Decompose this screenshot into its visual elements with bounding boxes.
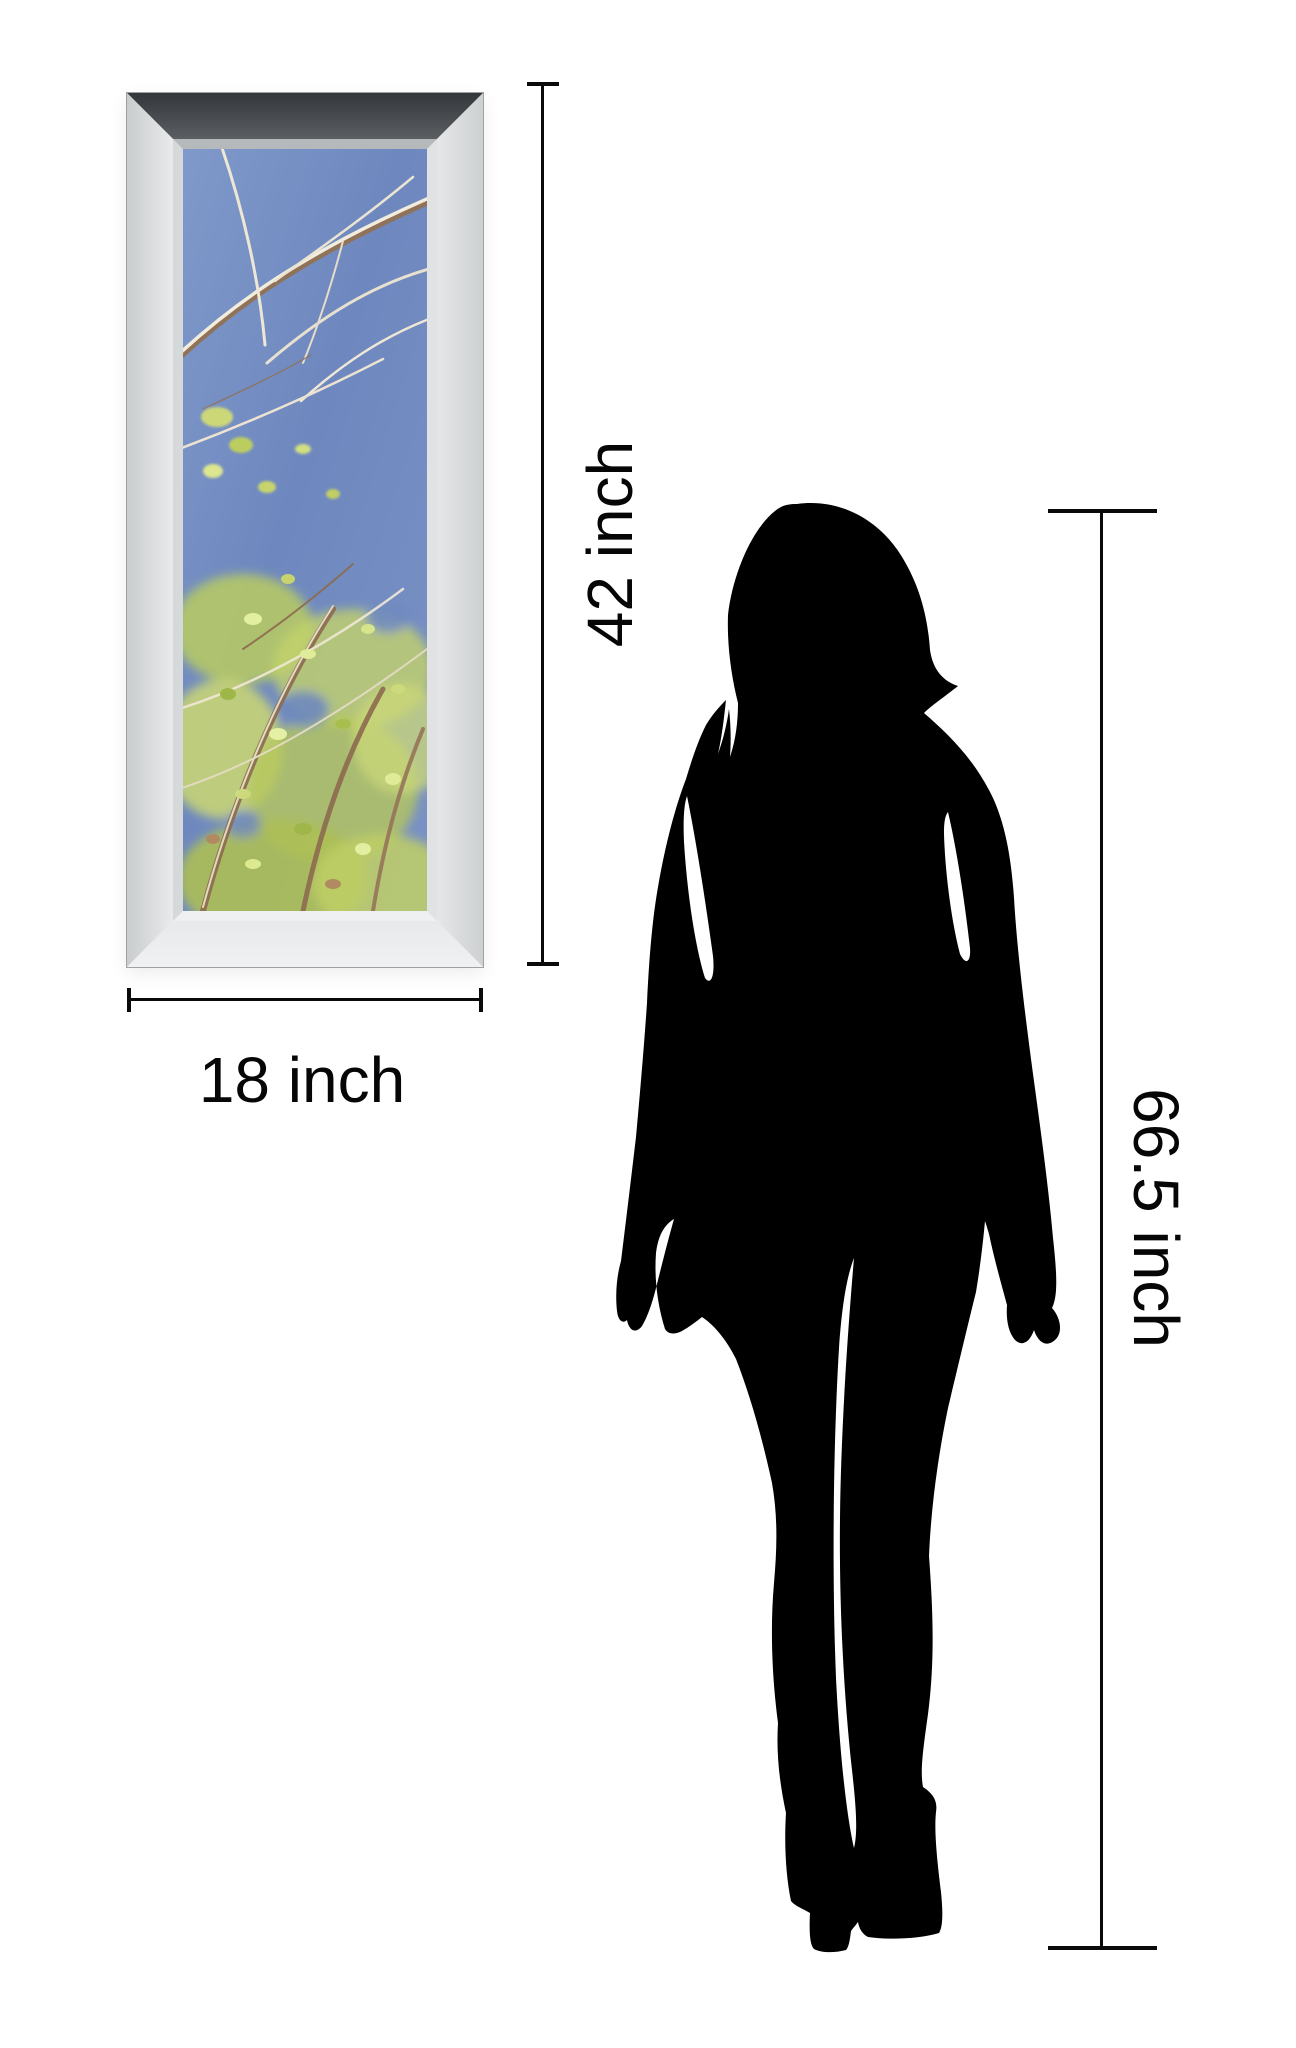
art-height-bottom-tick bbox=[527, 962, 559, 966]
person-height-dimension-line bbox=[1100, 511, 1103, 1950]
art-height-top-tick bbox=[527, 82, 559, 86]
art-width-dimension-line bbox=[128, 998, 483, 1001]
art-width-left-tick bbox=[127, 988, 131, 1012]
artwork-image bbox=[183, 149, 427, 911]
woman-silhouette bbox=[590, 498, 1060, 1958]
art-width-label: 18 inch bbox=[199, 1048, 405, 1112]
person-height-label: 66.5 inch bbox=[1124, 1088, 1188, 1348]
art-width-right-tick bbox=[479, 988, 483, 1012]
framed-wall-art bbox=[127, 93, 483, 967]
art-height-dimension-line bbox=[541, 84, 544, 966]
size-comparison-illustration: 42 inch 18 inch 66.5 inch bbox=[0, 0, 1296, 2048]
person-height-top-tick bbox=[1048, 509, 1157, 513]
person-height-bottom-tick bbox=[1048, 1946, 1157, 1950]
